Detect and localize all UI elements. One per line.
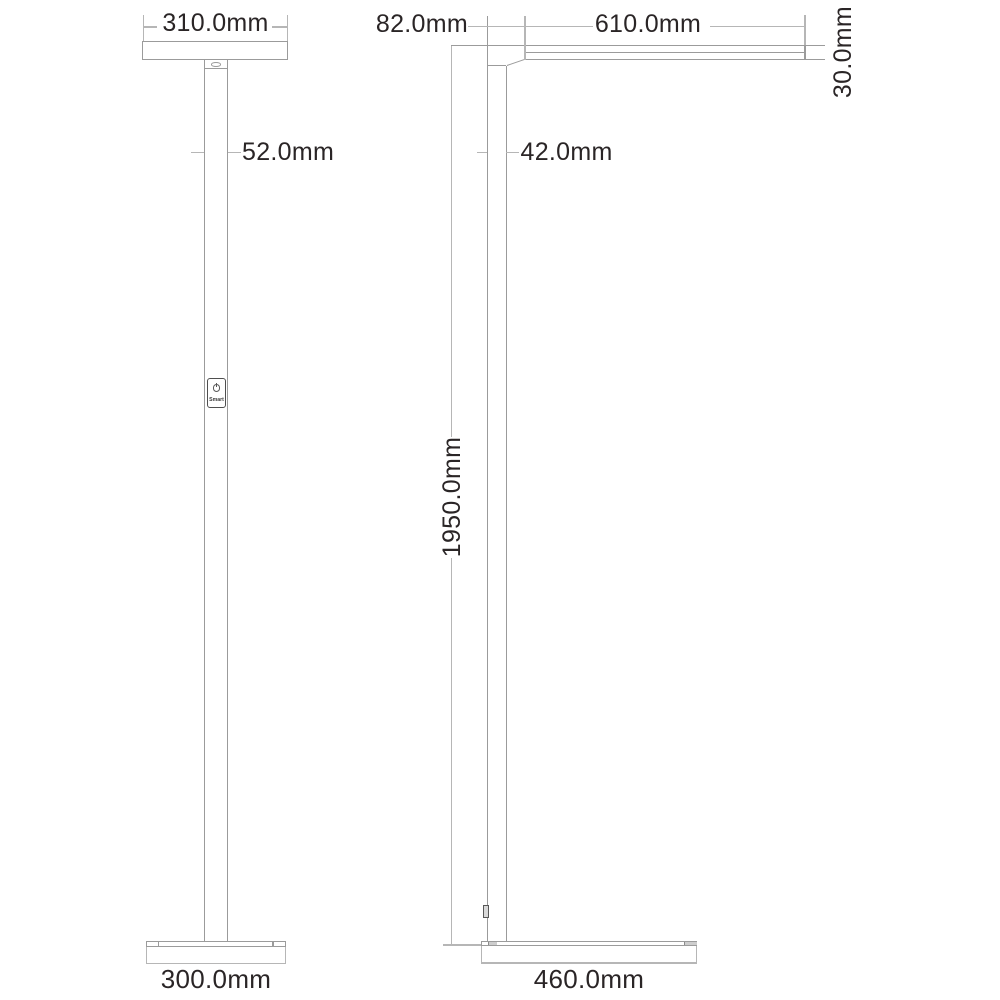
front-pole-outline — [204, 60, 228, 942]
extension-line — [524, 16, 525, 60]
power-icon-tick — [216, 383, 217, 387]
side-base-outline — [481, 941, 697, 946]
front-base-tick — [158, 941, 159, 947]
dimension-line — [506, 152, 519, 153]
side-pole-seam — [487, 65, 506, 66]
arm-bottom-line — [524, 59, 825, 60]
side-pole-front-edge — [487, 16, 488, 941]
side-pole-back-edge — [506, 66, 507, 942]
extension-line — [804, 15, 805, 45]
front-head-outline — [142, 41, 288, 59]
extension-line — [285, 947, 286, 963]
side-head-thickness-label: 30.0mm — [830, 0, 856, 107]
switch-panel: Smart — [207, 378, 227, 408]
height-dimension-line — [451, 558, 452, 945]
side-base-foot — [684, 942, 697, 945]
front-base-tick — [272, 941, 273, 947]
height-dimension-line — [451, 45, 452, 437]
arm-end-edge — [804, 45, 805, 61]
side-head-thickness-text: 30.0mm — [831, 6, 856, 98]
dimension-line — [191, 152, 204, 153]
front-head-width-label: 310.0mm — [143, 11, 288, 36]
power-socket-detail — [483, 905, 489, 918]
extension-line — [696, 946, 697, 963]
extension-line — [146, 947, 147, 963]
side-total-height-label: 1950.0mm — [439, 422, 465, 572]
floor-tick — [443, 944, 482, 945]
dimension-line — [710, 26, 805, 27]
arm-top-line — [451, 45, 825, 46]
side-total-height-text: 1950.0mm — [440, 437, 465, 558]
arm-chamfer — [506, 59, 524, 66]
side-head-offset-label: 82.0mm — [338, 12, 468, 37]
dimension-line — [477, 152, 487, 153]
side-base-foot — [488, 942, 498, 945]
extension-line — [481, 946, 482, 963]
front-base-width-label: 300.0mm — [146, 966, 286, 992]
dimension-line — [468, 26, 593, 27]
lamp-dimension-drawing: 310.0mm 52.0mm Smart 300.0mm — [0, 0, 1000, 1000]
arm-inner-line — [524, 52, 805, 53]
switch-label: Smart — [208, 398, 226, 404]
side-base-depth-label: 460.0mm — [481, 966, 697, 992]
side-arm-length-label: 610.0mm — [583, 12, 713, 37]
side-pole-depth-label: 42.0mm — [521, 140, 613, 165]
front-pole-width-label: 52.0mm — [242, 140, 334, 165]
dimension-line — [228, 152, 241, 153]
front-base-outline — [146, 941, 287, 947]
